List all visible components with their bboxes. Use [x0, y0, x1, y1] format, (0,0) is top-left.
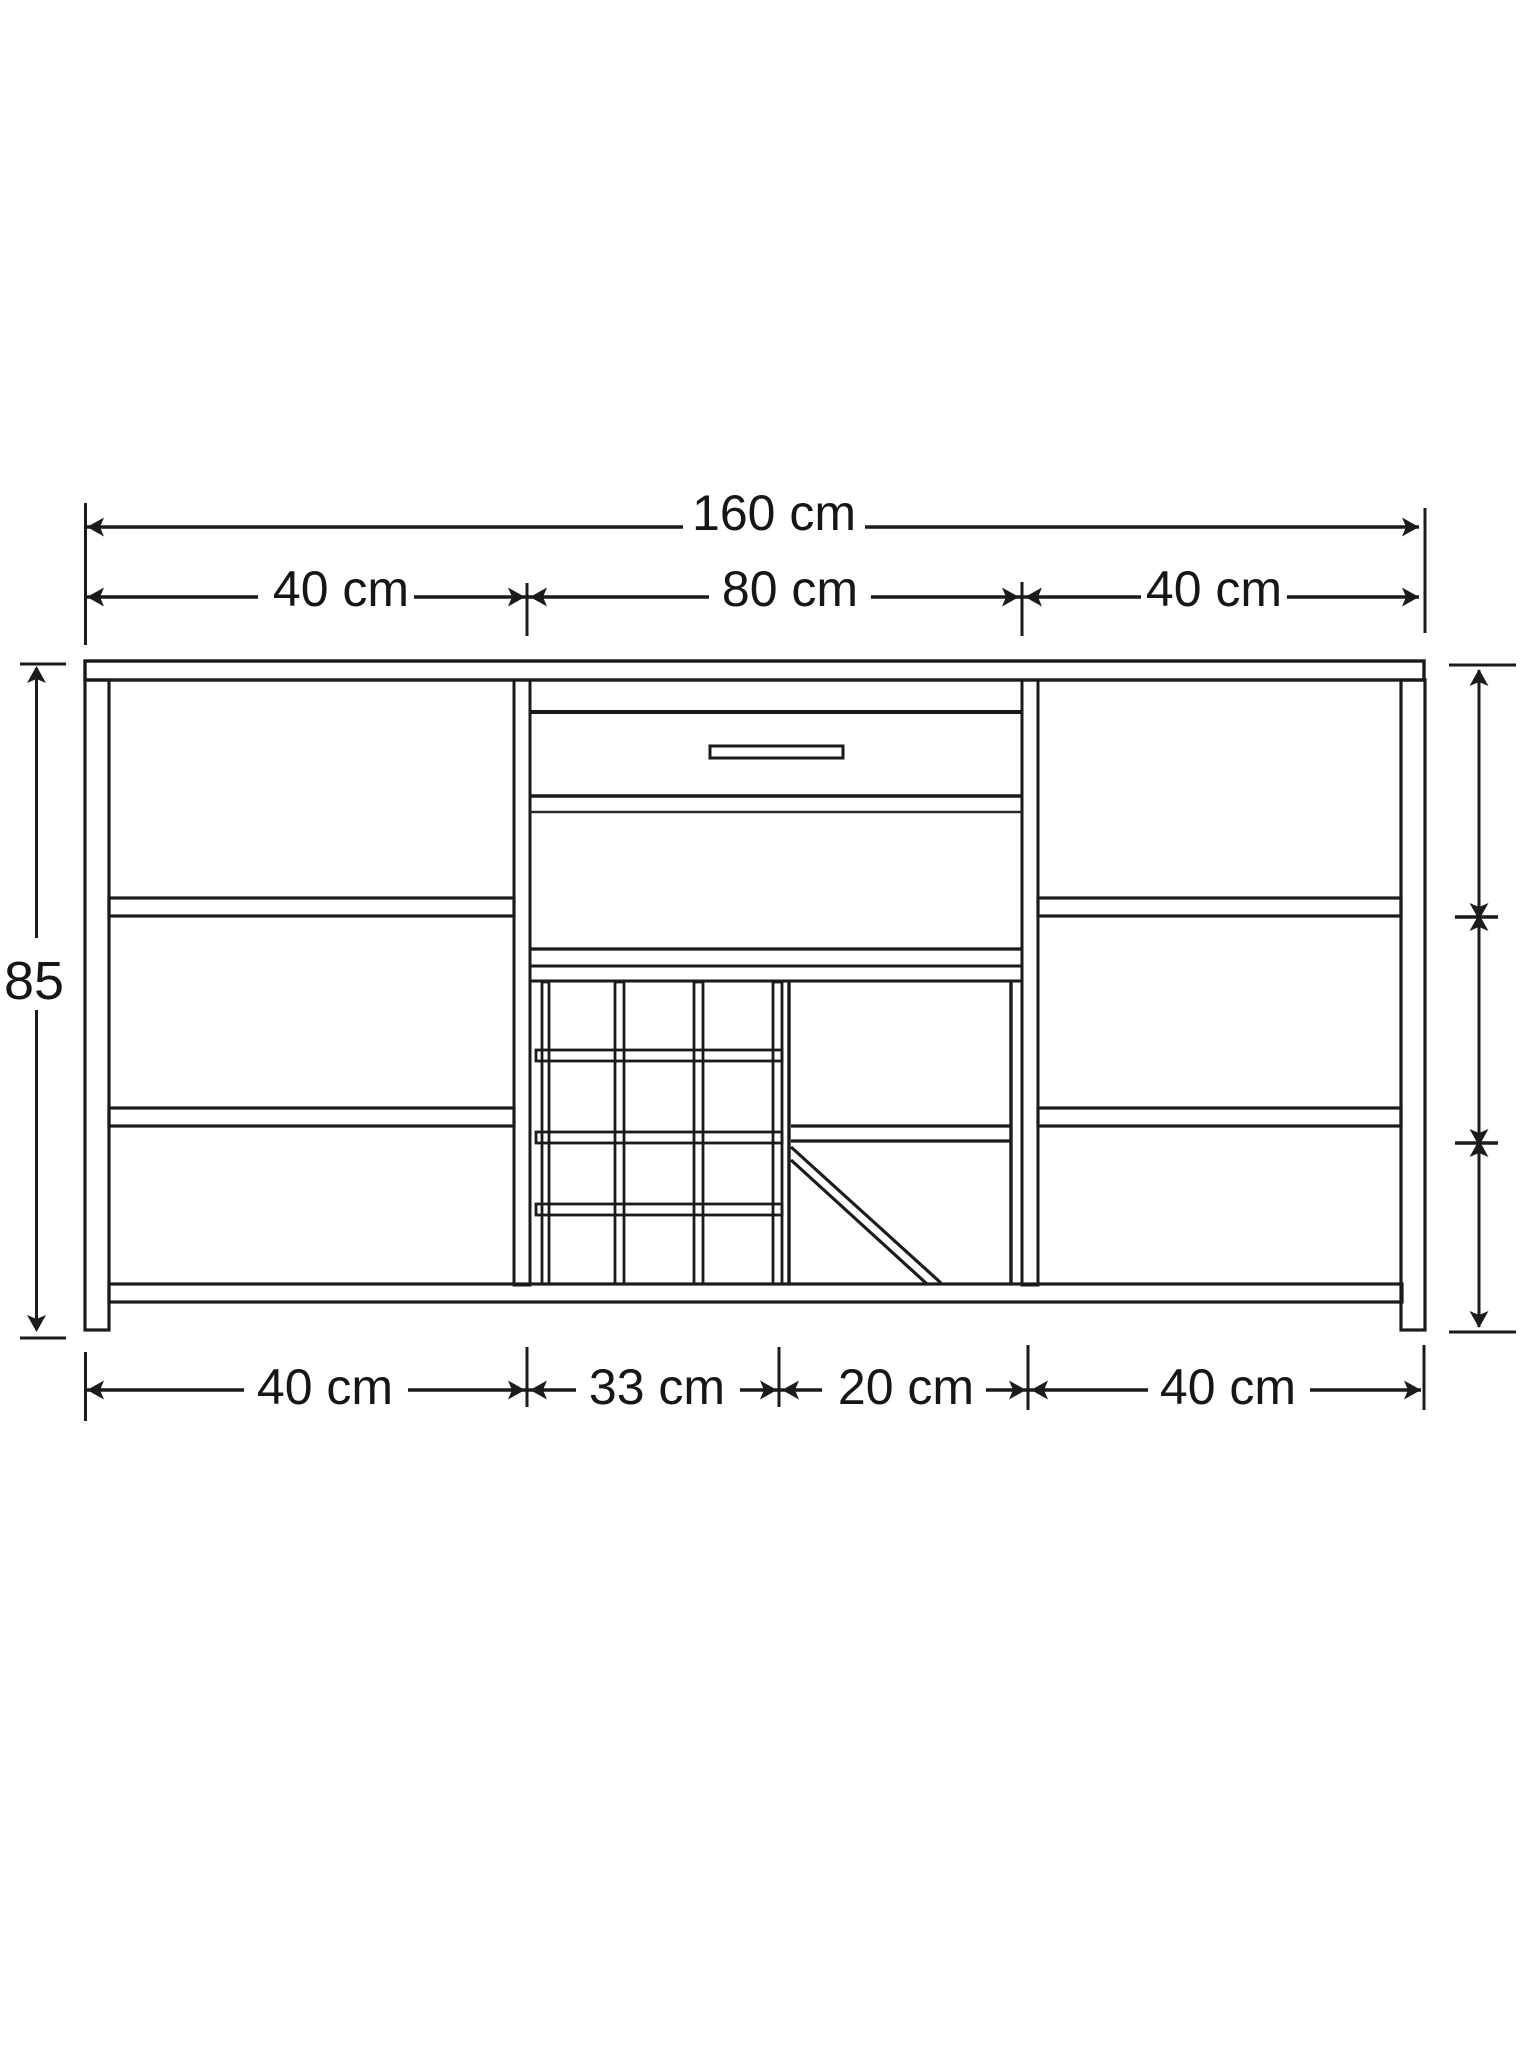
svg-text:80 cm: 80 cm	[722, 561, 858, 617]
svg-text:20 cm: 20 cm	[838, 1359, 974, 1415]
svg-text:33 cm: 33 cm	[589, 1359, 725, 1415]
svg-text:40 cm: 40 cm	[273, 561, 409, 617]
svg-text:40 cm: 40 cm	[1160, 1359, 1296, 1415]
svg-text:85: 85	[4, 951, 64, 1011]
svg-text:160 cm: 160 cm	[692, 485, 856, 541]
svg-text:40 cm: 40 cm	[1146, 561, 1282, 617]
svg-text:40 cm: 40 cm	[257, 1359, 393, 1415]
